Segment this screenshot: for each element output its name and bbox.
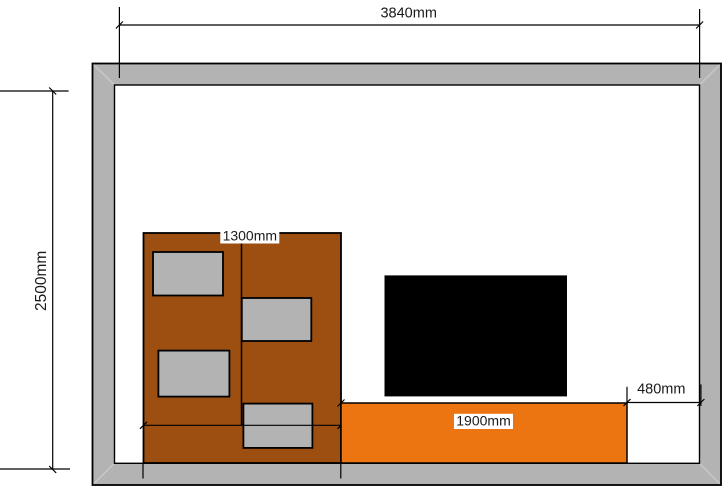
svg-text:480mm: 480mm bbox=[637, 382, 685, 398]
svg-text:2500mm: 2500mm bbox=[33, 251, 50, 311]
svg-text:1300mm: 1300mm bbox=[223, 228, 277, 244]
svg-text:3840mm: 3840mm bbox=[380, 6, 436, 22]
svg-text:1900mm: 1900mm bbox=[456, 413, 510, 429]
